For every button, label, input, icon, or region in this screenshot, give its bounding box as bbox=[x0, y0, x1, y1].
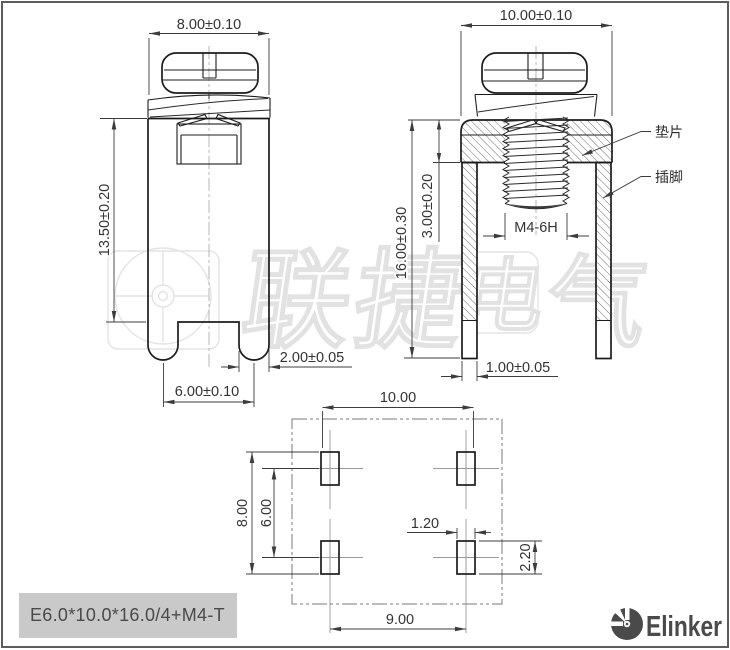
dim-pad-width: 1.20 bbox=[411, 516, 439, 532]
dim-thread-spec: M4-6H bbox=[514, 220, 558, 236]
part-number: E6.0*10.0*16.0/4+M4-T bbox=[30, 605, 225, 626]
label-washer: 垫片 bbox=[655, 124, 683, 140]
screw-slot-front bbox=[203, 54, 216, 79]
dim-side-width: 10.00±0.10 bbox=[500, 8, 572, 24]
screw-head-front bbox=[162, 53, 258, 93]
dim-leg-width: 2.00±0.05 bbox=[280, 350, 344, 366]
brand-logo: Elinker bbox=[610, 607, 722, 643]
dim-pad-height: 2.20 bbox=[518, 543, 534, 571]
dim-front-height: 13.50±0.20 bbox=[97, 184, 113, 256]
screw-head-side bbox=[482, 53, 587, 93]
dim-total-height: 16.00±0.30 bbox=[394, 207, 410, 279]
dim-row-outer: 8.00 bbox=[235, 499, 251, 527]
drawing-page: 联 捷 电 气 bbox=[0, 0, 730, 650]
technical-drawing: 联 捷 电 气 bbox=[0, 0, 730, 650]
dim-row-pitch: 6.00 bbox=[259, 499, 275, 527]
footprint-dimensions: 10.00 9.00 8.00 6.00 1.20 2.20 bbox=[235, 390, 542, 629]
body-outline-projection bbox=[292, 419, 502, 604]
dim-pin-thickness: 1.00±0.05 bbox=[486, 360, 550, 376]
label-pin: 插脚 bbox=[655, 169, 683, 185]
screw-slot-side bbox=[528, 54, 543, 80]
dim-leg-pitch: 6.00±0.10 bbox=[175, 384, 239, 400]
watermark: 联 捷 电 气 bbox=[108, 240, 655, 360]
watermark-char: 联 bbox=[235, 240, 360, 360]
footprint-view bbox=[292, 419, 502, 633]
brand-logo-text: Elinker bbox=[646, 611, 722, 643]
dim-washer-thickness: 3.00±0.20 bbox=[420, 174, 436, 238]
dim-outer-width: 10.00 bbox=[380, 390, 416, 406]
dim-front-width: 8.00±0.10 bbox=[177, 17, 241, 33]
title-block: E6.0*10.0*16.0/4+M4-T bbox=[19, 593, 237, 638]
dim-col-pitch: 9.00 bbox=[386, 612, 414, 628]
